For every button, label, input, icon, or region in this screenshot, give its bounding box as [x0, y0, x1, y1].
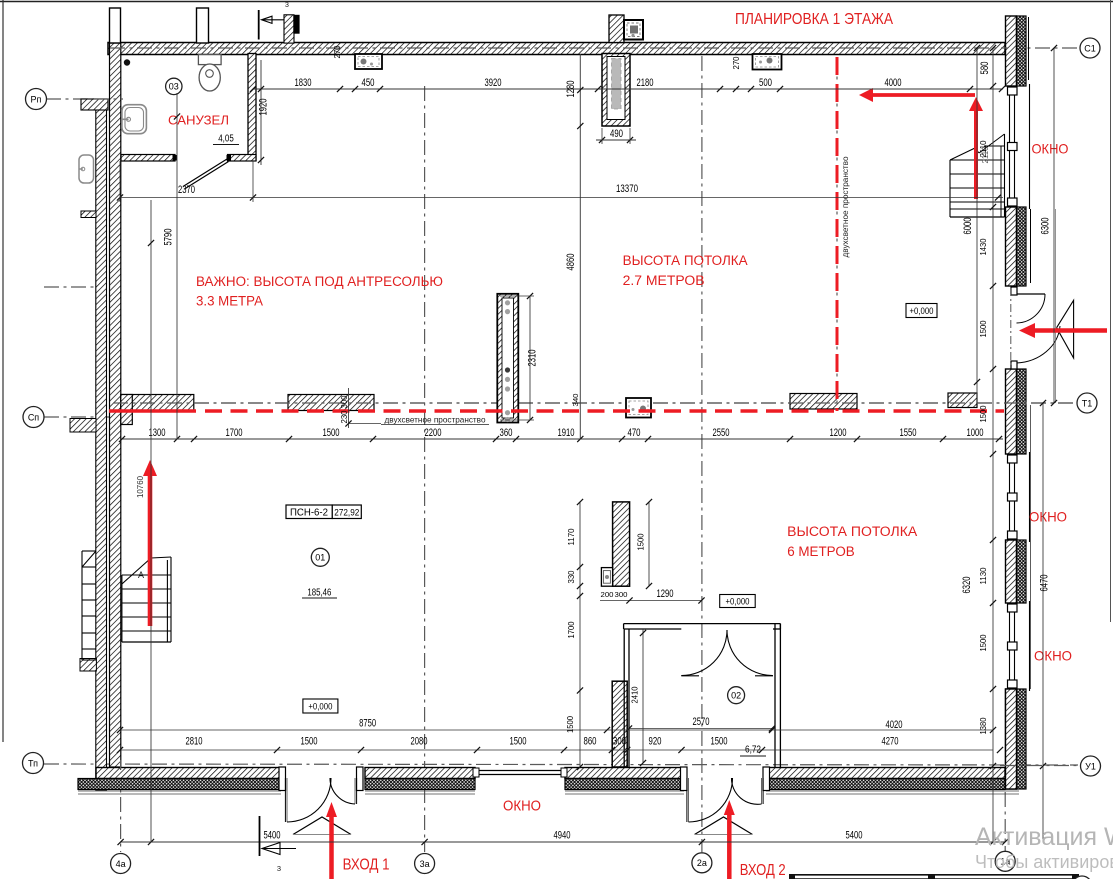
svg-text:ПЛАНИРОВКА 1 ЭТАЖА: ПЛАНИРОВКА 1 ЭТАЖА	[735, 11, 894, 28]
svg-text:200: 200	[601, 592, 614, 599]
svg-text:01: 01	[315, 553, 325, 563]
svg-text:185,46: 185,46	[307, 588, 331, 599]
svg-text:4020: 4020	[886, 719, 903, 731]
svg-text:3.3 МЕТРА: 3.3 МЕТРА	[196, 294, 263, 309]
svg-text:6470: 6470	[1039, 575, 1051, 592]
svg-text:1200: 1200	[830, 427, 847, 439]
svg-text:2410: 2410	[631, 686, 640, 704]
svg-text:2180: 2180	[637, 77, 654, 89]
svg-text:3920: 3920	[485, 77, 502, 89]
svg-text:двухсветное пространство: двухсветное пространство	[385, 416, 486, 425]
svg-text:А: А	[138, 570, 144, 580]
svg-text:2310: 2310	[527, 350, 539, 367]
svg-text:ВХОД 1: ВХОД 1	[343, 857, 390, 874]
svg-text:Активация Win: Активация Win	[975, 823, 1113, 851]
svg-text:Сп: Сп	[28, 412, 39, 422]
svg-text:2810: 2810	[186, 735, 203, 747]
svg-text:ОКНО: ОКНО	[1029, 509, 1067, 525]
svg-text:1000: 1000	[967, 427, 984, 439]
svg-text:1380: 1380	[979, 717, 988, 735]
svg-text:5400: 5400	[264, 830, 281, 842]
svg-text:1550: 1550	[900, 427, 917, 439]
svg-text:1830: 1830	[295, 77, 312, 89]
svg-text:1170: 1170	[567, 528, 576, 546]
svg-text:03: 03	[169, 82, 179, 92]
svg-text:13370: 13370	[616, 183, 638, 195]
svg-text:4860: 4860	[565, 254, 577, 271]
svg-text:10760: 10760	[136, 475, 145, 498]
svg-text:4940: 4940	[554, 830, 571, 842]
svg-text:2370: 2370	[178, 184, 195, 196]
svg-text:580: 580	[979, 62, 991, 75]
svg-text:1700: 1700	[226, 427, 243, 439]
svg-text:6300: 6300	[1040, 218, 1052, 235]
svg-text:1700: 1700	[567, 621, 576, 639]
svg-text:860: 860	[584, 735, 597, 747]
svg-text:300: 300	[613, 735, 626, 747]
svg-text:2570: 2570	[693, 716, 710, 728]
svg-text:470: 470	[628, 427, 641, 439]
svg-text:ОКНО: ОКНО	[1034, 648, 1072, 664]
svg-text:3: 3	[285, 2, 289, 9]
svg-text:4,05: 4,05	[218, 134, 234, 145]
svg-text:8750: 8750	[359, 718, 376, 730]
svg-text:ОКНО: ОКНО	[503, 799, 541, 815]
svg-text:272,92: 272,92	[334, 507, 359, 518]
svg-text:1500: 1500	[979, 320, 988, 338]
svg-text:4000: 4000	[885, 77, 902, 89]
svg-text:300: 300	[615, 592, 628, 599]
svg-text:1500: 1500	[323, 427, 340, 439]
svg-text:1290: 1290	[657, 588, 674, 600]
svg-text:6320: 6320	[961, 577, 973, 594]
svg-text:ОКНО: ОКНО	[1032, 141, 1069, 157]
svg-text:490: 490	[610, 128, 623, 140]
svg-text:920: 920	[649, 735, 662, 747]
svg-text:ВХОД 2: ВХОД 2	[740, 862, 786, 879]
svg-text:450: 450	[362, 77, 375, 89]
svg-text:270: 270	[732, 56, 741, 70]
svg-text:+0,000: +0,000	[726, 597, 750, 608]
svg-text:360: 360	[500, 427, 513, 439]
svg-text:ВЫСОТА ПОТОЛКА: ВЫСОТА ПОТОЛКА	[623, 253, 748, 268]
svg-text:двухсветное пространство: двухсветное пространство	[841, 156, 850, 257]
svg-text:2.7 МЕТРОВ: 2.7 МЕТРОВ	[623, 273, 705, 288]
svg-text:2а: 2а	[697, 858, 707, 868]
svg-text:1500: 1500	[637, 533, 646, 551]
svg-text:6000: 6000	[962, 218, 974, 235]
svg-text:3а: 3а	[420, 859, 430, 869]
svg-text:+0,000: +0,000	[308, 702, 332, 713]
svg-text:230: 230	[340, 410, 349, 424]
svg-text:2200: 2200	[425, 427, 442, 439]
svg-text:5400: 5400	[846, 830, 863, 842]
svg-text:1500: 1500	[711, 735, 728, 747]
svg-text:2110: 2110	[979, 140, 988, 158]
svg-text:С1: С1	[1084, 43, 1096, 53]
svg-text:02: 02	[731, 691, 741, 701]
svg-text:2550: 2550	[713, 427, 730, 439]
svg-text:3: 3	[277, 864, 281, 873]
svg-text:1920: 1920	[258, 99, 270, 116]
svg-text:1910: 1910	[558, 427, 575, 439]
svg-text:Рп: Рп	[31, 94, 42, 104]
svg-text:Чтобы активироват: Чтобы активироват	[975, 852, 1113, 872]
svg-text:5790: 5790	[163, 229, 175, 246]
svg-text:1430: 1430	[979, 238, 988, 256]
svg-text:2080: 2080	[411, 735, 428, 747]
svg-text:1280: 1280	[565, 81, 577, 98]
svg-text:ВЫСОТА ПОТОЛКА: ВЫСОТА ПОТОЛКА	[787, 524, 917, 539]
svg-text:У1: У1	[1085, 761, 1096, 771]
svg-text:300: 300	[340, 395, 349, 409]
svg-text:340: 340	[573, 393, 580, 406]
svg-text:1500: 1500	[301, 735, 318, 747]
svg-text:Т1: Т1	[1082, 398, 1093, 408]
svg-text:+0,000: +0,000	[910, 306, 934, 317]
svg-text:ПСН-6-2: ПСН-6-2	[290, 507, 328, 518]
svg-text:1130: 1130	[979, 567, 988, 585]
svg-text:270: 270	[333, 45, 342, 59]
svg-text:Тп: Тп	[28, 758, 38, 768]
svg-text:1500: 1500	[979, 634, 988, 652]
svg-text:4270: 4270	[882, 735, 899, 747]
svg-text:330: 330	[567, 570, 576, 584]
svg-text:ВАЖНО: ВЫСОТА ПОД АНТРЕСОЛЬЮ: ВАЖНО: ВЫСОТА ПОД АНТРЕСОЛЬЮ	[196, 274, 443, 289]
svg-text:500: 500	[759, 77, 772, 89]
svg-text:6 МЕТРОВ: 6 МЕТРОВ	[787, 544, 855, 559]
svg-text:1500: 1500	[510, 735, 527, 747]
svg-text:1500: 1500	[979, 405, 988, 423]
svg-text:4а: 4а	[116, 859, 126, 869]
